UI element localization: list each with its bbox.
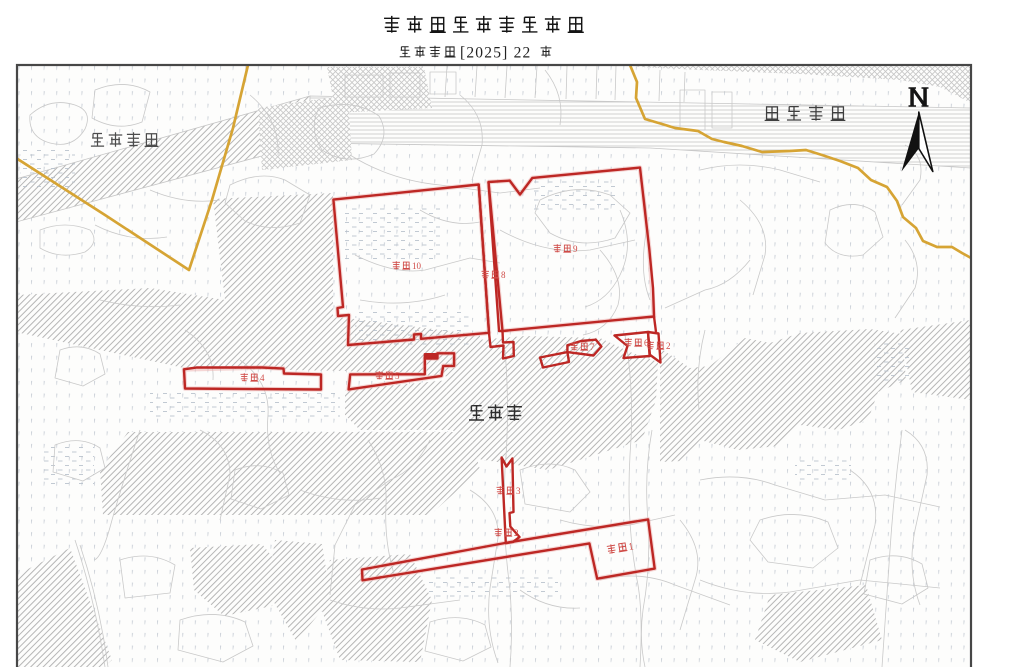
svg-text:8: 8 <box>501 270 506 280</box>
svg-text:2: 2 <box>514 528 519 538</box>
svg-text:5: 5 <box>395 371 400 381</box>
svg-text:4: 4 <box>260 373 265 383</box>
svg-text:9: 9 <box>573 244 578 254</box>
svg-text:2: 2 <box>666 341 671 351</box>
svg-text:[2025] 22: [2025] 22 <box>460 45 532 62</box>
svg-text:3: 3 <box>516 486 521 496</box>
svg-text:10: 10 <box>412 261 422 271</box>
svg-text:7: 7 <box>590 342 595 352</box>
